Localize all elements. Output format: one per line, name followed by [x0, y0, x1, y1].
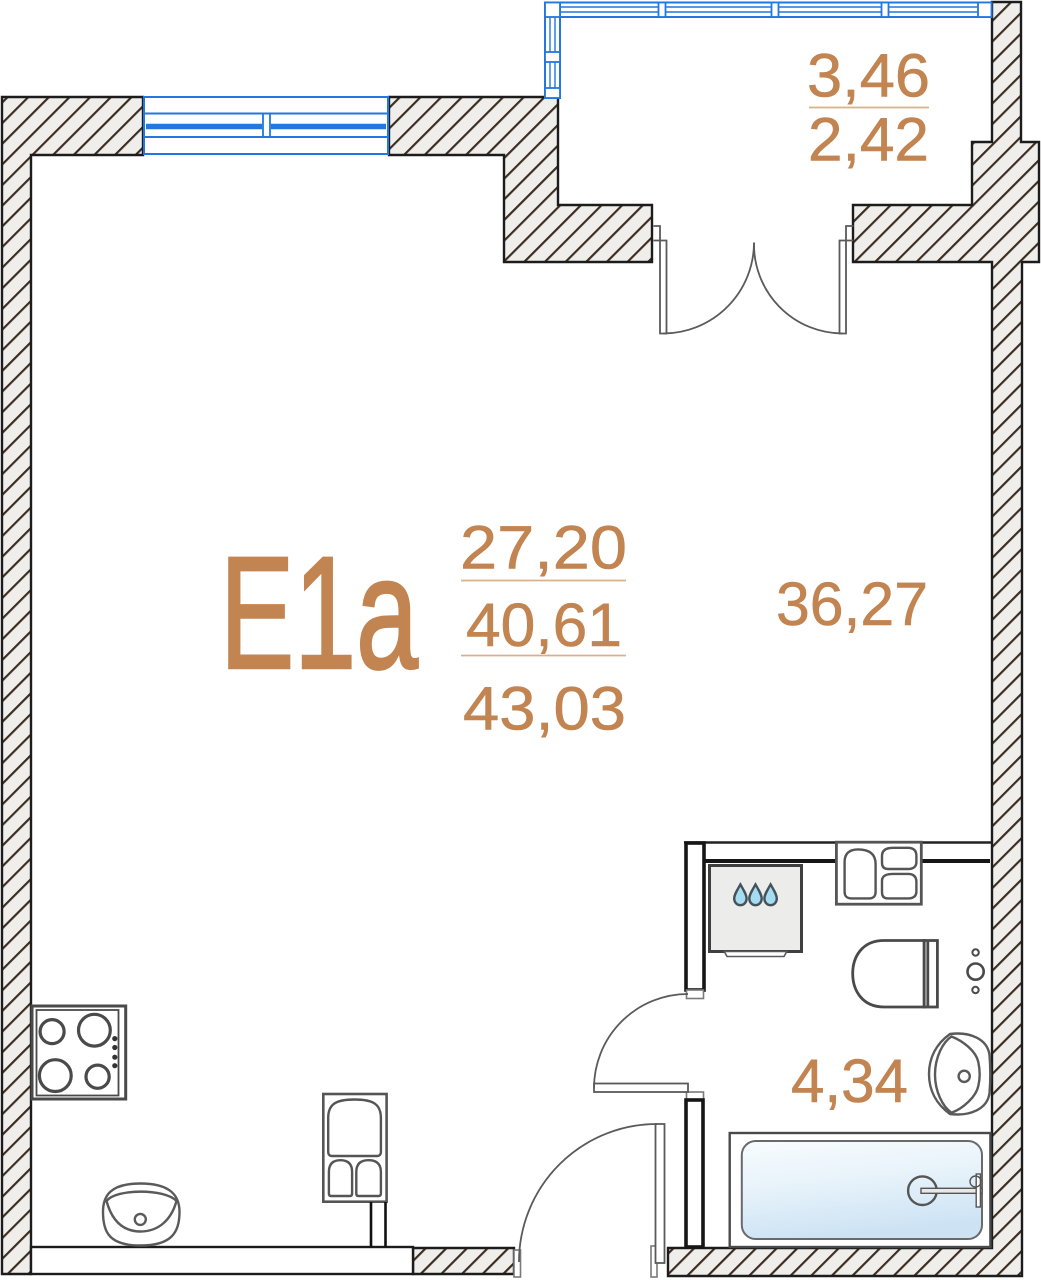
svg-text:2,42: 2,42	[808, 106, 929, 174]
svg-text:36,27: 36,27	[776, 570, 928, 638]
svg-text:27,20: 27,20	[460, 514, 627, 582]
svg-text:40,61: 40,61	[466, 591, 622, 659]
svg-text:E1a: E1a	[220, 523, 418, 702]
svg-text:4,34: 4,34	[791, 1047, 908, 1115]
svg-text:3,46: 3,46	[807, 42, 930, 110]
svg-text:43,03: 43,03	[463, 675, 626, 743]
